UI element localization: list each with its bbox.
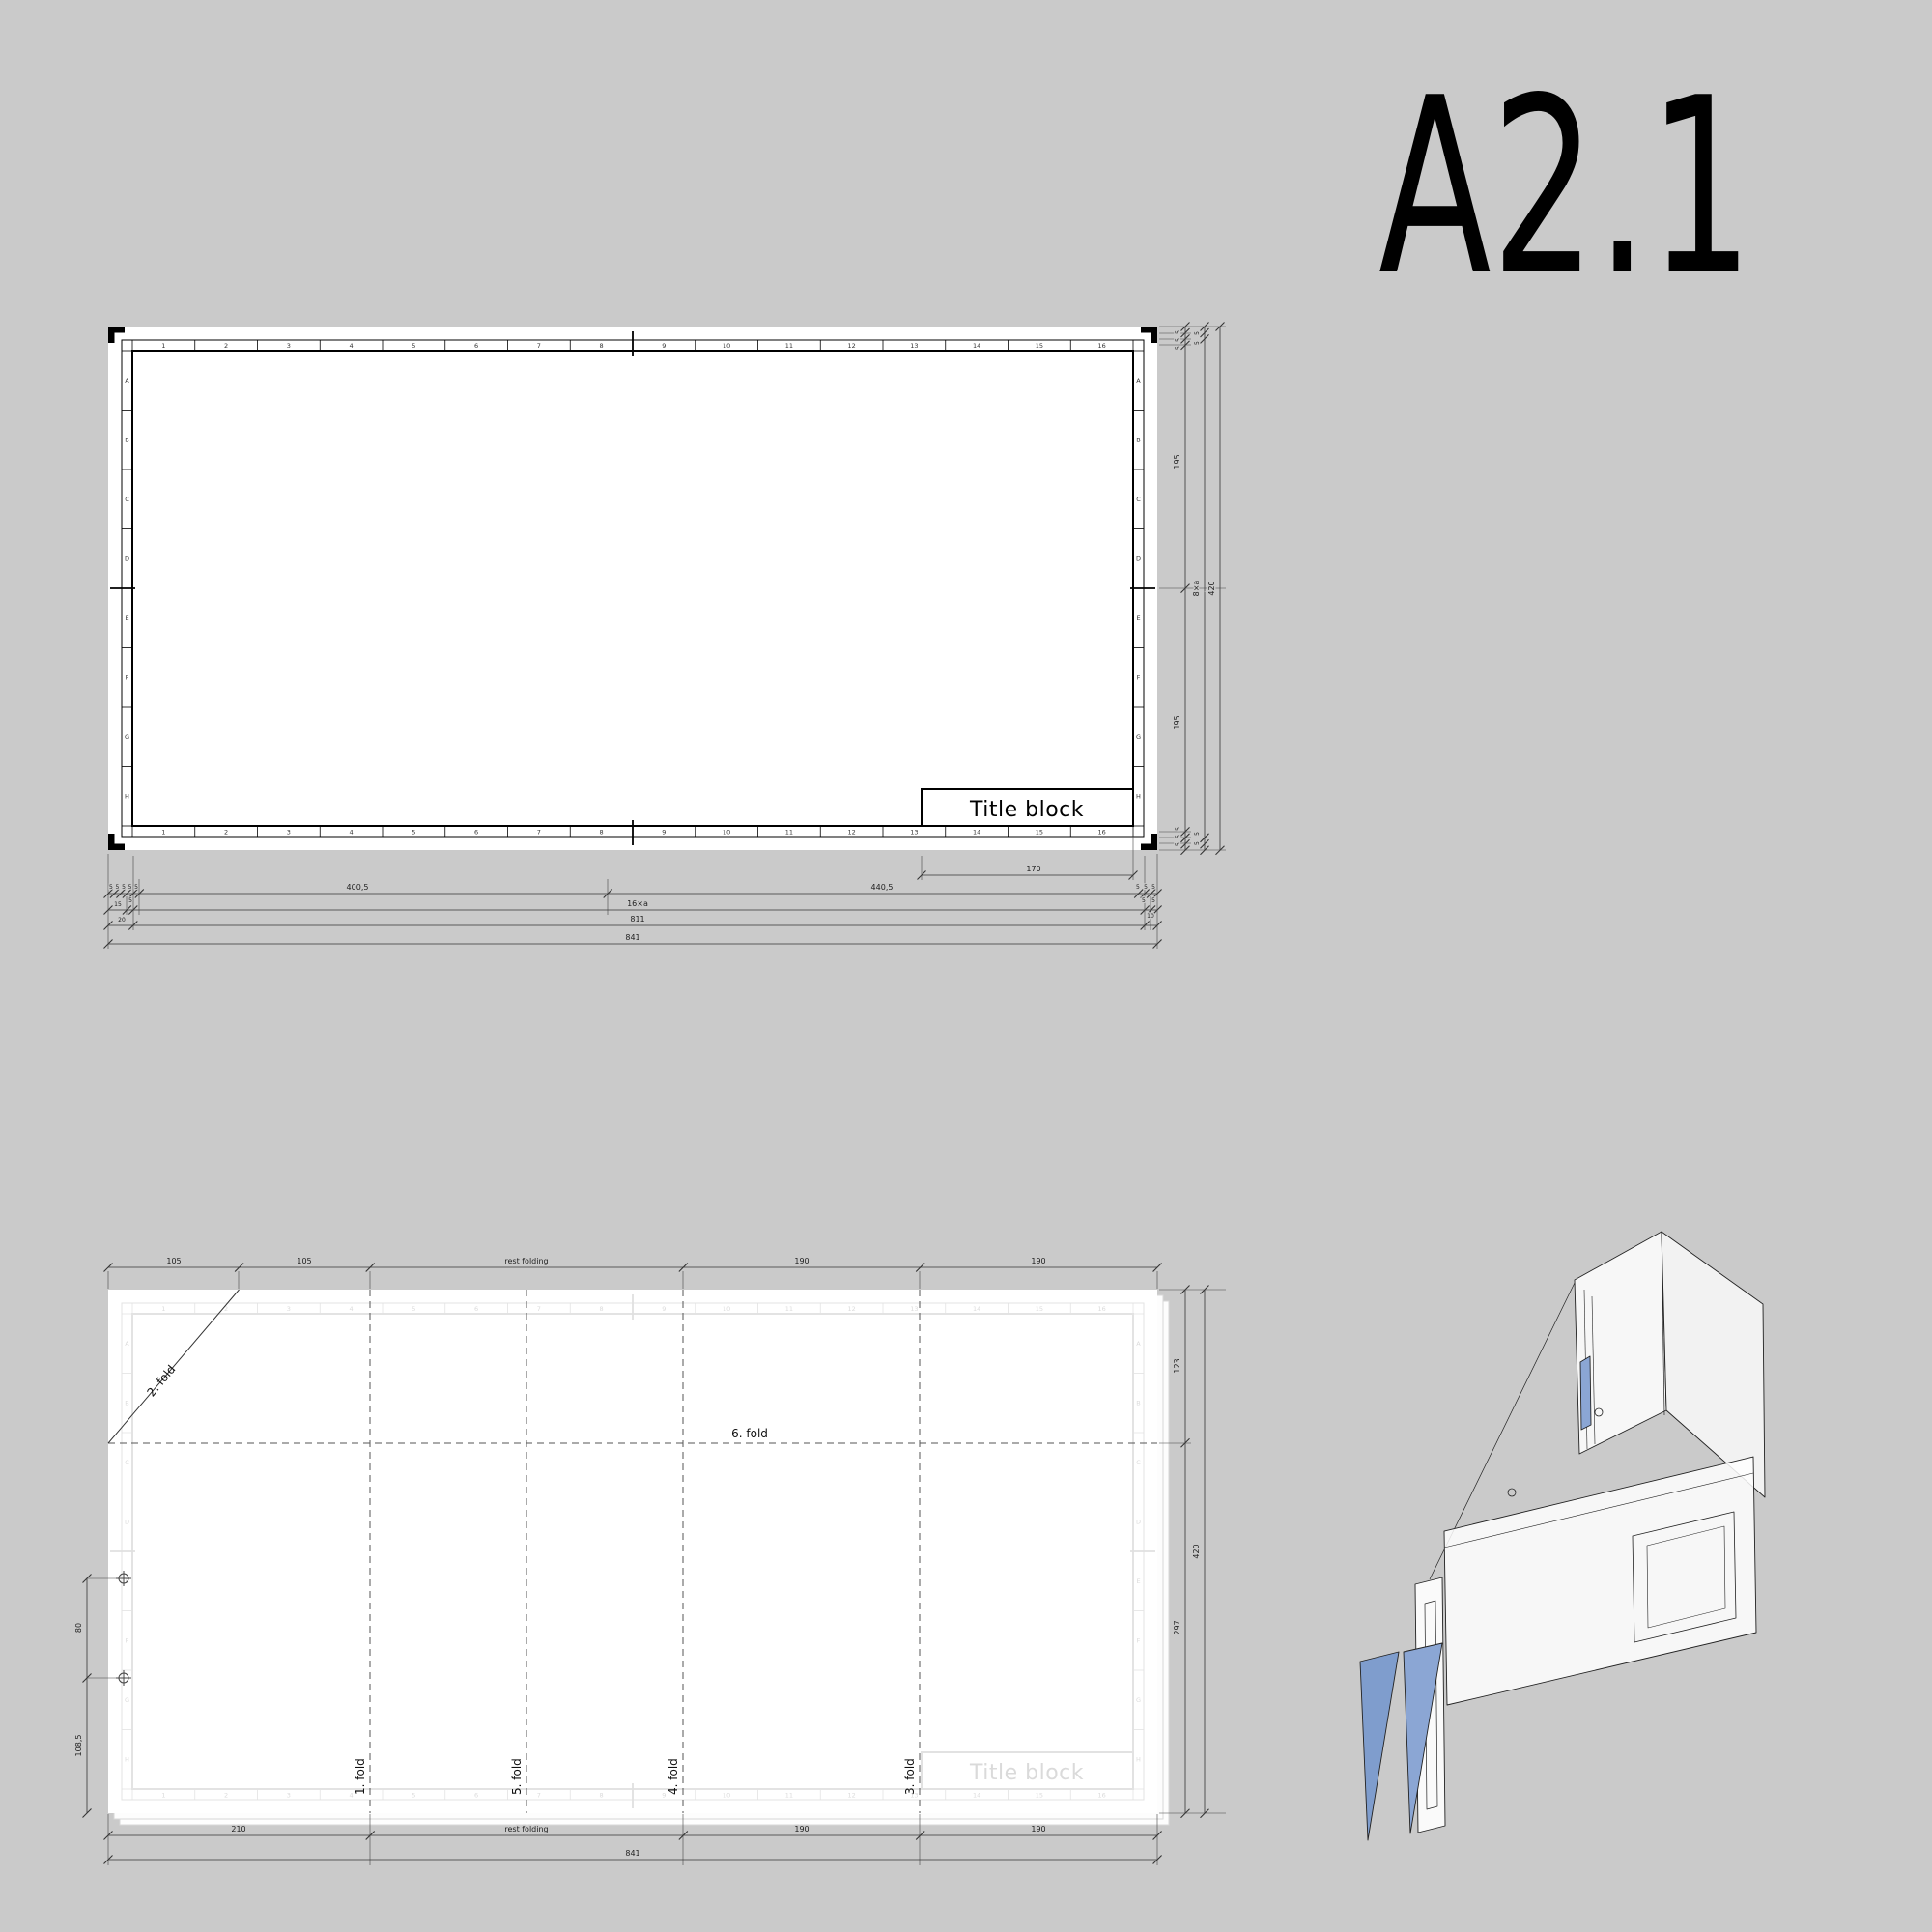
dim-label-title-block-width: 170 (1026, 865, 1040, 873)
grid-ref-label: 13 (910, 829, 918, 837)
fold-label-1: 1. fold (354, 1758, 367, 1795)
grid-ref-label: 3 (287, 1792, 291, 1800)
dim-label: 420 (1207, 581, 1216, 595)
grid-ref-label: A (125, 1340, 129, 1348)
grid-ref-label: D (125, 555, 129, 563)
grid-ref-label: 4 (350, 829, 354, 837)
dim-label: 195 (1173, 715, 1181, 729)
sheet-template-view: 1122334455667788991010111112121313141415… (108, 327, 1157, 850)
grid-ref-label: 2 (224, 829, 228, 837)
dim-label: 811 (630, 915, 644, 923)
grid-ref-label: 13 (910, 342, 918, 350)
grid-ref-label: G (1136, 1696, 1141, 1704)
grid-ref-label: B (1136, 437, 1140, 444)
grid-ref-label: 16 (1097, 1305, 1105, 1313)
grid-ref-label: F (126, 1637, 129, 1645)
dim-label: 440,5 (871, 883, 894, 892)
paper (108, 327, 1157, 850)
grid-ref-label: 4 (350, 1305, 354, 1313)
grid-ref-label: 13 (910, 1305, 918, 1313)
grid-ref-label: 7 (537, 1792, 541, 1800)
dim-label: 297 (1173, 1620, 1181, 1634)
dim-label: 400,5 (347, 883, 369, 892)
dim-label: 10 (1147, 913, 1154, 920)
dim-label: rest folding (504, 1825, 548, 1833)
grid-ref-label: 3 (287, 342, 291, 350)
dim-label: 5 5 5 (1136, 884, 1155, 891)
grid-ref-label: 1 (161, 1792, 165, 1800)
grid-ref-label: 6 (474, 829, 478, 837)
grid-ref-label: 9 (662, 829, 666, 837)
dim-label: 16×a (627, 899, 648, 908)
grid-ref-label: 6 (474, 1792, 478, 1800)
drawing-scene: A2.1 11223344556677889910101111121213131… (0, 0, 1932, 1932)
paper-fold-view (108, 1290, 1157, 1813)
grid-ref-label: 6 (474, 342, 478, 350)
grid-ref-label: C (1136, 1459, 1141, 1466)
grid-ref-label: A (125, 377, 129, 384)
dim-label: 8×a (1192, 581, 1201, 597)
dim-label: 105 (297, 1257, 311, 1265)
grid-ref-label: 1 (161, 829, 165, 837)
dim-label: 20 (118, 917, 126, 923)
grid-ref-label: 10 (723, 1305, 730, 1313)
grid-ref-label: D (125, 1519, 129, 1526)
folded-packet-top-face (1444, 1457, 1756, 1705)
punch-hole-icon (1508, 1489, 1516, 1496)
grid-ref-label: 10 (723, 342, 730, 350)
format-title: A2.1 (1378, 46, 1753, 329)
grid-ref-label: 2 (224, 342, 228, 350)
grid-ref-label: 12 (847, 1305, 855, 1313)
grid-ref-label: F (1137, 1637, 1141, 1645)
grid-ref-label: E (1136, 1577, 1140, 1585)
dim-label: 5 5 (1142, 897, 1155, 904)
grid-ref-label: C (1136, 496, 1141, 503)
grid-ref-label: H (1136, 1756, 1141, 1764)
dim-label: 5 5 (1194, 832, 1201, 845)
grid-ref-label: A (1136, 1340, 1141, 1348)
dim-label: 80 (74, 1623, 83, 1633)
dim-label: 195 (1173, 454, 1181, 469)
dim-label: 15 (114, 901, 122, 908)
dim-label: 5 5 5 (1175, 330, 1181, 350)
grid-ref-label: D (1136, 555, 1141, 563)
grid-ref-label: E (1136, 614, 1140, 622)
grid-ref-label: 14 (973, 342, 980, 350)
grid-ref-label: B (125, 1400, 128, 1407)
grid-ref-label: C (125, 1459, 129, 1466)
grid-ref-label: 15 (1036, 1305, 1043, 1313)
grid-ref-label: G (125, 1696, 129, 1704)
fold-label-6: 6. fold (731, 1427, 768, 1440)
dim-label: 420 (1192, 1544, 1201, 1558)
grid-ref-label: 15 (1036, 1792, 1043, 1800)
grid-ref-label: 5 (412, 829, 415, 837)
grid-ref-label: 8 (600, 829, 604, 837)
grid-ref-label: 7 (537, 342, 541, 350)
dim-label: 5 5 5 5 5 (109, 884, 138, 891)
grid-ref-label: 16 (1097, 342, 1105, 350)
grid-ref-label: 15 (1036, 342, 1043, 350)
grid-ref-label: 11 (785, 342, 793, 350)
grid-ref-label: E (125, 614, 128, 622)
grid-ref-label: B (1136, 1400, 1140, 1407)
dim-label: 210 (231, 1825, 245, 1833)
title-block-label: Title block (969, 798, 1084, 822)
grid-ref-label: 8 (600, 1305, 604, 1313)
grid-ref-label: 5 (412, 1305, 415, 1313)
grid-ref-label: 11 (785, 829, 793, 837)
grid-ref-label: 5 (412, 1792, 415, 1800)
folding-scheme-view: 1122334455667788991010111112121313141415… (108, 1290, 1169, 1825)
grid-ref-label: 12 (847, 1792, 855, 1800)
grid-ref-label: 5 (412, 342, 415, 350)
dim-label: 5 (128, 897, 132, 904)
grid-ref-label: 16 (1097, 1792, 1105, 1800)
dim-label: 123 (1173, 1358, 1181, 1373)
dim-label: 190 (1031, 1825, 1045, 1833)
grid-ref-label: 9 (662, 1792, 666, 1800)
fold-label-5: 5. fold (510, 1758, 524, 1795)
dim-label: 5 5 (1194, 331, 1201, 345)
fold-label-3: 3. fold (903, 1758, 917, 1795)
grid-ref-label: G (1136, 733, 1141, 741)
canvas: A2.1 11223344556677889910101111121213131… (0, 0, 1932, 1932)
dim-label: 5 5 5 (1175, 827, 1181, 846)
grid-ref-label: 11 (785, 1792, 793, 1800)
fold-label-4: 4. fold (667, 1758, 680, 1795)
dim-label: 841 (625, 1849, 639, 1858)
grid-ref-label: B (125, 437, 128, 444)
grid-ref-label: 1 (161, 342, 165, 350)
dim-label: 190 (794, 1825, 809, 1833)
blue-gusset-triangle (1360, 1652, 1399, 1840)
grid-ref-label: 11 (785, 1305, 793, 1313)
grid-ref-label: H (125, 1756, 129, 1764)
grid-ref-label: F (126, 674, 129, 682)
grid-ref-label: 9 (662, 1305, 666, 1313)
grid-ref-label: 15 (1036, 829, 1043, 837)
grid-ref-label: 7 (537, 829, 541, 837)
grid-ref-label: 14 (973, 1792, 980, 1800)
grid-ref-label: 8 (600, 1792, 604, 1800)
dim-label: 108,5 (74, 1735, 83, 1757)
grid-ref-label: C (125, 496, 129, 503)
dim-label: 841 (625, 933, 639, 942)
grid-ref-label: G (125, 733, 129, 741)
grid-ref-label: 10 (723, 829, 730, 837)
grid-ref-label: 12 (847, 829, 855, 837)
dim-label: 190 (794, 1257, 809, 1265)
grid-ref-label: 6 (474, 1305, 478, 1313)
dim-label: 190 (1031, 1257, 1045, 1265)
grid-ref-label: 2 (224, 1792, 228, 1800)
grid-ref-label: 7 (537, 1305, 541, 1313)
folded-result-3d-view (1360, 1232, 1765, 1840)
grid-ref-label: 1 (161, 1305, 165, 1313)
grid-ref-label: 10 (723, 1792, 730, 1800)
grid-ref-label: D (1136, 1519, 1141, 1526)
grid-ref-label: 3 (287, 1305, 291, 1313)
grid-ref-label: 3 (287, 829, 291, 837)
blue-gusset-sliver (1580, 1356, 1591, 1430)
grid-ref-label: 12 (847, 342, 855, 350)
grid-ref-label: 16 (1097, 829, 1105, 837)
dim-label: rest folding (504, 1257, 548, 1265)
ghost-title-block-label: Title block (969, 1761, 1084, 1785)
grid-ref-label: 14 (973, 829, 980, 837)
grid-ref-label: H (1136, 793, 1141, 801)
grid-ref-label: 4 (350, 342, 354, 350)
grid-ref-label: 8 (600, 342, 604, 350)
grid-ref-label: A (1136, 377, 1141, 384)
dim-label: 105 (166, 1257, 181, 1265)
grid-ref-label: 14 (973, 1305, 980, 1313)
grid-ref-label: 9 (662, 342, 666, 350)
grid-ref-label: H (125, 793, 129, 801)
grid-ref-label: F (1137, 674, 1141, 682)
